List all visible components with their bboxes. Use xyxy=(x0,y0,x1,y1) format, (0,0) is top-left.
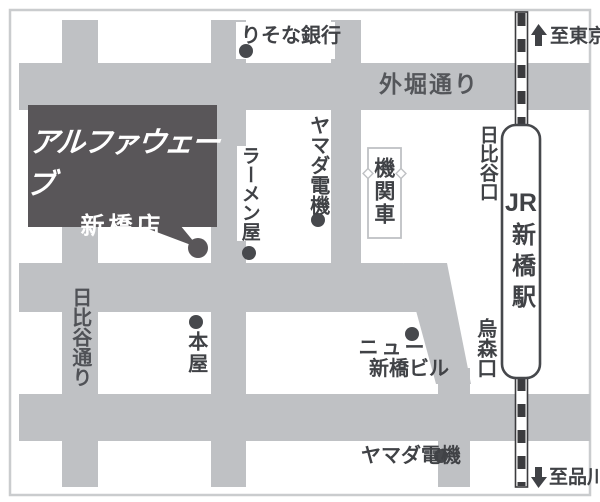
yamada-denki-top-dot xyxy=(311,213,325,227)
ramen-shop-label: ラーメン屋 xyxy=(237,146,261,241)
railway-line-top xyxy=(516,12,528,126)
jr-station-label: JR 新橋駅 xyxy=(502,125,540,378)
to-shinagawa-label: 至品川 xyxy=(549,468,600,488)
yamada-denki-top-label: ヤマダ電機 xyxy=(307,115,328,215)
street-horizontal-3 xyxy=(19,394,590,441)
to-tokyo-label: 至東京 xyxy=(550,27,600,47)
branch-name: 新橋店 xyxy=(81,206,165,241)
yamada-denki-bottom-label: ヤマダ電機 xyxy=(361,446,461,467)
bookstore-dot xyxy=(189,315,203,329)
jr-text: JR xyxy=(505,189,537,218)
up-arrow-icon xyxy=(531,24,547,46)
railway-line-bottom xyxy=(516,377,528,487)
new-shimbashi-bldg-label-line2: 新橋ビル xyxy=(369,359,449,380)
station-name: 新橋駅 xyxy=(504,222,539,315)
ramen-shop-dot xyxy=(242,246,256,260)
karasumori-exit-label: 烏森口 xyxy=(474,318,495,378)
store-logo-box: アルファウェーブ 新橋店 xyxy=(28,105,217,227)
brand-name: アルファウェーブ xyxy=(24,119,220,203)
down-arrow-icon xyxy=(531,467,547,488)
sotobori-street-label: 外堀通り xyxy=(379,73,479,97)
street-sotobori xyxy=(19,63,590,110)
new-shimbashi-bldg-label-line1: ニュー xyxy=(359,338,428,359)
locomotive-label: 機関車 xyxy=(372,157,394,226)
risona-bank-label: りそな銀行 xyxy=(241,26,341,47)
store-access-map: アルファウェーブ 新橋店 JR 新橋駅 りそな銀行 外堀通り 至東京 至品川 ニ… xyxy=(0,0,600,502)
hibiya-exit-label: 日比谷口 xyxy=(477,125,497,201)
hibiya-dori-street-label: 日比谷通り xyxy=(69,287,90,387)
store-location-dot xyxy=(188,238,208,258)
bookstore-label: 本屋 xyxy=(185,331,206,375)
